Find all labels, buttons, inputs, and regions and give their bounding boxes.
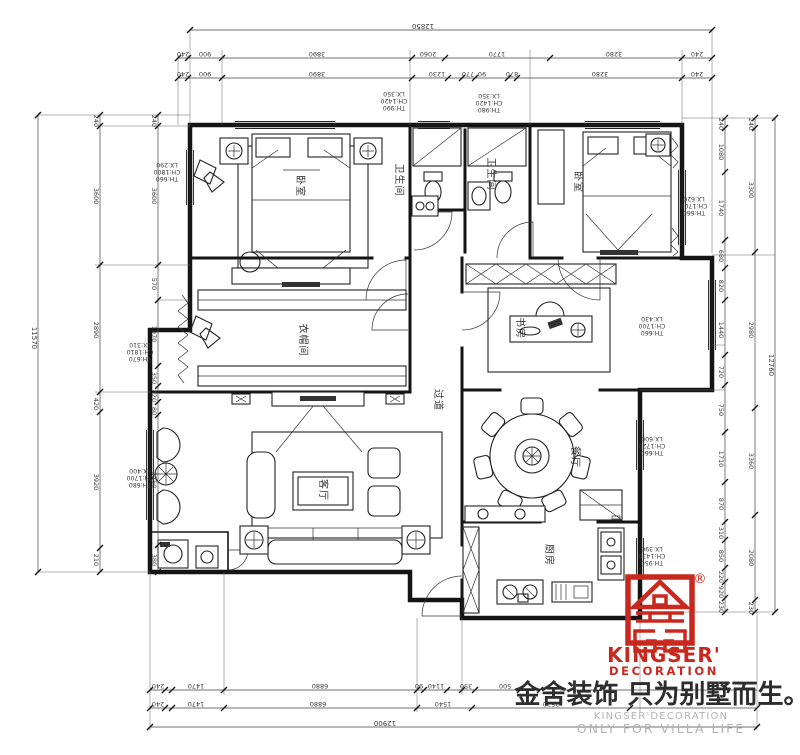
window-master-top	[235, 122, 335, 129]
brand-subname: DECORATION	[609, 664, 719, 678]
kitchen-counter-right	[598, 528, 624, 580]
tag-ch: CH:1420	[381, 97, 408, 104]
tag-ch: CH:1700	[681, 202, 708, 209]
study-furniture	[466, 264, 616, 372]
dim-label: 2060	[420, 50, 437, 58]
insulation-zigzag-left	[178, 295, 188, 383]
dim-label: 240	[691, 70, 703, 78]
master-tv-console	[232, 268, 350, 284]
dim-label: 420	[92, 398, 100, 410]
toilet-icon	[495, 181, 511, 203]
kingser-logo-icon	[628, 577, 692, 651]
dim-label: 1470	[188, 700, 205, 708]
logo-band	[636, 613, 684, 621]
dim-label: 3280	[606, 50, 623, 58]
wc-sink	[196, 546, 218, 568]
dim-label: 1710	[717, 451, 725, 468]
tag-ch: CH:1420	[476, 99, 503, 106]
door-cloakroom	[372, 294, 408, 330]
wardrobe	[538, 130, 564, 204]
registered-icon: ®	[694, 572, 707, 587]
wc-furniture	[158, 540, 218, 568]
room-label-dining: 餐厅	[569, 446, 582, 468]
room-label-bath1: 卫生间	[393, 164, 406, 197]
window-bay-right	[709, 280, 716, 350]
room-label-bedroom2: 卧室	[572, 171, 585, 193]
dim-label: 240	[717, 118, 725, 130]
window-tag: TH:980 CH:1420 LX:350	[476, 92, 503, 113]
dim-label: 3920	[92, 474, 100, 491]
tag-th: TH:680	[129, 481, 152, 488]
window-tag: TH:680 CH:1700 LX:400	[127, 467, 154, 488]
chaise	[247, 452, 275, 518]
plant-icon	[190, 316, 220, 348]
tag-th: TH:660	[641, 329, 664, 336]
dim-label: 11570	[30, 327, 38, 349]
tag-lx: LX:350	[478, 92, 500, 99]
kitchen-counter-top	[465, 506, 545, 522]
dim-label: 1740	[717, 200, 725, 217]
armchair	[368, 486, 400, 516]
tag-th: TH:950	[641, 559, 664, 566]
tv-icon	[282, 282, 320, 287]
tag-lx: LX:390	[641, 545, 663, 552]
dim-label: 920	[717, 586, 725, 598]
dim-label: 310	[717, 527, 725, 539]
pillow	[588, 137, 618, 154]
room-label-corridor: 过道	[432, 389, 445, 411]
dim-label: 220	[717, 571, 725, 583]
dim-label: 240	[747, 118, 755, 130]
logo-roof-window	[654, 596, 666, 605]
dim-label: 3890	[309, 70, 326, 78]
door-study	[462, 292, 500, 330]
dim-label: 12760	[767, 354, 775, 376]
dim-label: 80	[150, 407, 158, 415]
dim-label: 90	[415, 682, 423, 690]
door-master	[366, 260, 406, 300]
dim-label: 1230	[429, 70, 446, 78]
dim-label: 850	[717, 550, 725, 562]
desk-chair	[536, 302, 564, 316]
dim-label: 3360	[747, 453, 755, 470]
dim-label: 240	[177, 70, 189, 78]
window-tag: TH:660 CH:1700 LX:430	[639, 315, 666, 336]
bathroom-furniture	[412, 128, 526, 216]
door-bath2	[497, 222, 533, 258]
floor-plan-drawing: 12850 240 900 3890 2060 1770 3280 240 24…	[0, 0, 800, 755]
tag-ch: CH:1700	[127, 474, 154, 481]
window-bath-top	[418, 122, 450, 129]
dim-label: 3600	[150, 188, 158, 205]
tag-lx: LX:620	[683, 195, 705, 202]
dim-label: 90	[478, 70, 486, 78]
tag-lx: LX:400	[129, 467, 151, 474]
dim-label: 900	[199, 50, 211, 58]
dim-label: 870	[506, 70, 518, 78]
tag-lx: LX:430	[641, 315, 663, 322]
dim-label: 350	[460, 682, 472, 690]
room-label-bath2: 卫生间	[485, 158, 498, 191]
dim-label: 1080	[717, 144, 725, 161]
pillow	[308, 138, 342, 157]
dim-label: 3890	[309, 50, 326, 58]
dim-label: 1440	[717, 322, 725, 339]
dim-label: 720	[717, 366, 725, 378]
tv-icon	[300, 396, 336, 401]
dim-label: 820	[717, 280, 725, 292]
balcony-chair	[157, 428, 180, 462]
window-tag: TH:950 CH:1430 LX:390	[639, 545, 666, 566]
floor-plan-page: 12850 240 900 3890 2060 1770 3280 240 24…	[0, 0, 800, 755]
dim-label: 770	[462, 70, 474, 78]
dim-label: 570	[150, 278, 158, 290]
pillow	[256, 138, 290, 157]
plant-icon	[194, 160, 224, 192]
door-bath1	[414, 212, 452, 250]
dim-label: 230	[747, 602, 755, 614]
slogan-chinese: 金舍装饰 只为别墅而生。	[513, 679, 800, 710]
furniture	[155, 128, 671, 613]
tag-th: TH:660	[156, 175, 179, 182]
tv-sightline	[276, 400, 362, 452]
room-label-living: 客厅	[317, 479, 330, 501]
dim-label: 230	[717, 601, 725, 613]
tag-ch: CH:1430	[639, 552, 666, 559]
dim-label: 3600	[92, 188, 100, 205]
bedroom2-furniture	[538, 130, 671, 255]
dim-label: 210	[92, 554, 100, 566]
room-label-cloakroom: 衣帽间	[297, 324, 310, 357]
dim-label: 6880	[312, 682, 329, 690]
tag-th: TH:660	[641, 449, 664, 456]
dim-label: 500	[499, 682, 511, 690]
dim-label: 900	[199, 70, 211, 78]
living-furniture	[232, 392, 442, 564]
armchair	[368, 448, 400, 478]
dim-label: 2080	[747, 550, 755, 567]
dim-label: 2890	[92, 322, 100, 339]
window-tag: TH:660 CH:1800 LX:290	[154, 161, 181, 182]
dim-label: 1540	[435, 700, 452, 708]
door-entry	[422, 576, 462, 616]
dim-label: 1140	[428, 682, 445, 690]
dim-label: 2980	[747, 322, 755, 339]
tall-cabinet	[463, 527, 479, 613]
tag-lx: LX:350	[383, 90, 405, 97]
dim-label: 870	[717, 498, 725, 510]
dim-label: 350	[150, 372, 158, 384]
window-master-left	[187, 150, 194, 205]
dim-label: 3280	[592, 70, 609, 78]
room-label-master-bedroom: 卧室	[294, 175, 307, 197]
tag-ch: CH:1700	[639, 322, 666, 329]
dim-label: 6880	[310, 700, 327, 708]
window-bedroom2-top	[585, 122, 660, 129]
dim-label: 240	[152, 682, 164, 690]
dim-label: 12850	[412, 22, 434, 30]
dim-label: 1470	[188, 682, 205, 690]
dim-label: 3300	[747, 182, 755, 199]
dim-label: 240	[150, 115, 158, 127]
sofa	[268, 540, 402, 564]
dim-label: 240	[92, 115, 100, 127]
balcony-chair	[157, 490, 180, 524]
tag-th: TH:990	[383, 104, 406, 111]
dim-label: 240	[177, 50, 189, 58]
window-tag: TH:990 CH:1420 LX:350	[381, 90, 408, 111]
tv-icon	[600, 250, 638, 255]
tag-lx: LX:290	[156, 161, 178, 168]
dim-label: 1770	[489, 50, 506, 58]
tag-ch: CH:1800	[154, 168, 181, 175]
dim-label: 12900	[374, 719, 396, 727]
tag-ch: CH:1810	[127, 348, 154, 355]
tag-th: TH:980	[478, 106, 501, 113]
toilet-tank	[424, 172, 442, 181]
dim-label: 750	[717, 404, 725, 416]
window-tag: TH:660 CH:1700 LX:620	[681, 195, 708, 216]
logo-frame	[628, 577, 692, 643]
tag-lx: LX:600	[641, 435, 663, 442]
tag-th: TH:660	[683, 209, 706, 216]
dim-label: 420	[150, 390, 158, 402]
dim-label: 240	[152, 700, 164, 708]
window-tag: TH:660 CH:1720 LX:600	[639, 435, 666, 456]
tag-th: TH:670	[129, 355, 152, 362]
dim-label: 680	[717, 250, 725, 262]
brand-tagline-en2: ONLY FOR VILLA LIFE	[577, 721, 746, 736]
stove	[497, 580, 543, 604]
drainer	[552, 582, 592, 602]
dim-label: 1970	[150, 326, 158, 343]
tag-ch: CH:1720	[639, 442, 666, 449]
tag-lx: LX:310	[129, 341, 151, 348]
room-label-study: 书房	[514, 317, 527, 339]
dim-label: 240	[691, 50, 703, 58]
dim-label: 380	[150, 554, 158, 566]
master-bedroom-furniture	[194, 134, 382, 287]
room-label-kitchen: 厨房	[543, 544, 556, 566]
window-tag: TH:670 CH:1810 LX:310	[127, 341, 154, 362]
